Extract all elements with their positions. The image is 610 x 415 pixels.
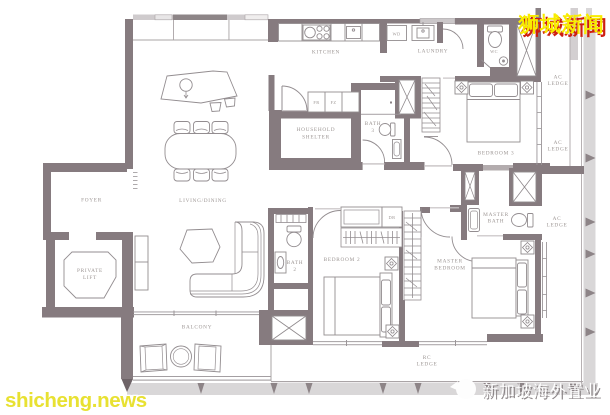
svg-text:FOYER: FOYER [81,198,102,204]
svg-text:BEDROOM 3: BEDROOM 3 [478,151,515,157]
svg-text:LEDGE: LEDGE [547,223,568,229]
svg-text:RC: RC [423,355,431,361]
svg-text:FR: FR [313,100,319,105]
svg-text:KITCHEN: KITCHEN [312,50,340,56]
svg-text:3: 3 [371,128,374,134]
svg-text:2: 2 [293,267,296,273]
svg-text:LIVING/DINING: LIVING/DINING [179,198,227,204]
svg-text:HOUSEHOLD: HOUSEHOLD [297,127,336,133]
svg-text:LIFT: LIFT [83,275,97,281]
svg-text:LEDGE: LEDGE [548,147,569,153]
svg-text:BATH: BATH [365,121,382,127]
svg-text:BATH: BATH [488,219,505,225]
svg-text:LEDGE: LEDGE [548,81,569,87]
svg-text:BALCONY: BALCONY [182,325,213,331]
svg-text:AC: AC [553,216,562,222]
svg-text:LEDGE: LEDGE [417,362,438,368]
svg-text:WD: WD [392,32,400,37]
svg-text:AC: AC [554,75,563,81]
svg-text:WC: WC [490,49,498,54]
svg-text:shicheng.news: shicheng.news [5,389,147,412]
svg-text:SHELTER: SHELTER [302,135,330,141]
svg-text:AC: AC [554,140,563,146]
svg-text:DR: DR [389,215,396,220]
svg-text:FZ: FZ [331,100,337,105]
svg-text:BATH: BATH [287,260,304,266]
svg-text:MASTER: MASTER [437,259,463,265]
svg-text:LAUNDRY: LAUNDRY [418,49,449,55]
svg-text:BEDROOM: BEDROOM [434,266,465,272]
svg-text:PRIVATE: PRIVATE [77,268,103,274]
svg-text:BEDROOM 2: BEDROOM 2 [324,257,361,263]
svg-text:MASTER: MASTER [483,212,509,218]
